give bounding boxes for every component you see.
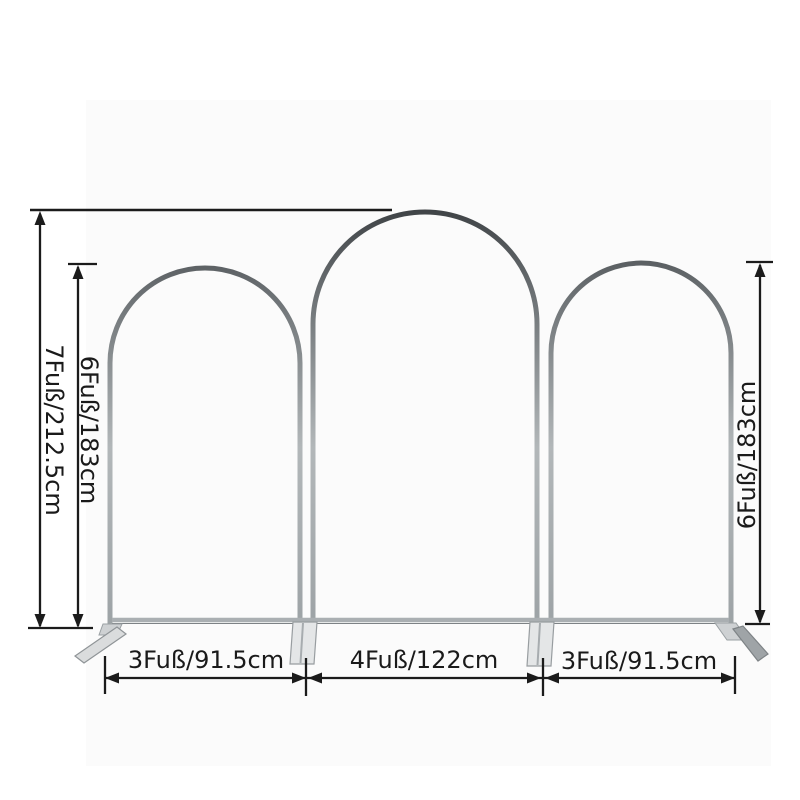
- arrow-up-icon: [35, 211, 46, 225]
- right-arch-width-label: 3Fuß/91.5cm: [561, 649, 717, 673]
- total-height-label: 7Fuß/212.5cm: [42, 344, 66, 515]
- arch-stands-illustration: [0, 0, 800, 800]
- left-arch-width-label: 3Fuß/91.5cm: [128, 648, 284, 672]
- arrow-down-icon: [73, 614, 84, 628]
- arrow-up-icon: [73, 265, 84, 279]
- right-arch-height-label: 6Fuß/183cm: [735, 381, 759, 530]
- left-arch-height-label: 6Fuß/183cm: [77, 356, 101, 505]
- arrow-down-icon: [35, 614, 46, 628]
- middle-arch-width-label: 4Fuß/122cm: [350, 648, 499, 672]
- product-dimension-diagram: 7Fuß/212.5cm 6Fuß/183cm 6Fuß/183cm 3Fuß/…: [0, 0, 800, 800]
